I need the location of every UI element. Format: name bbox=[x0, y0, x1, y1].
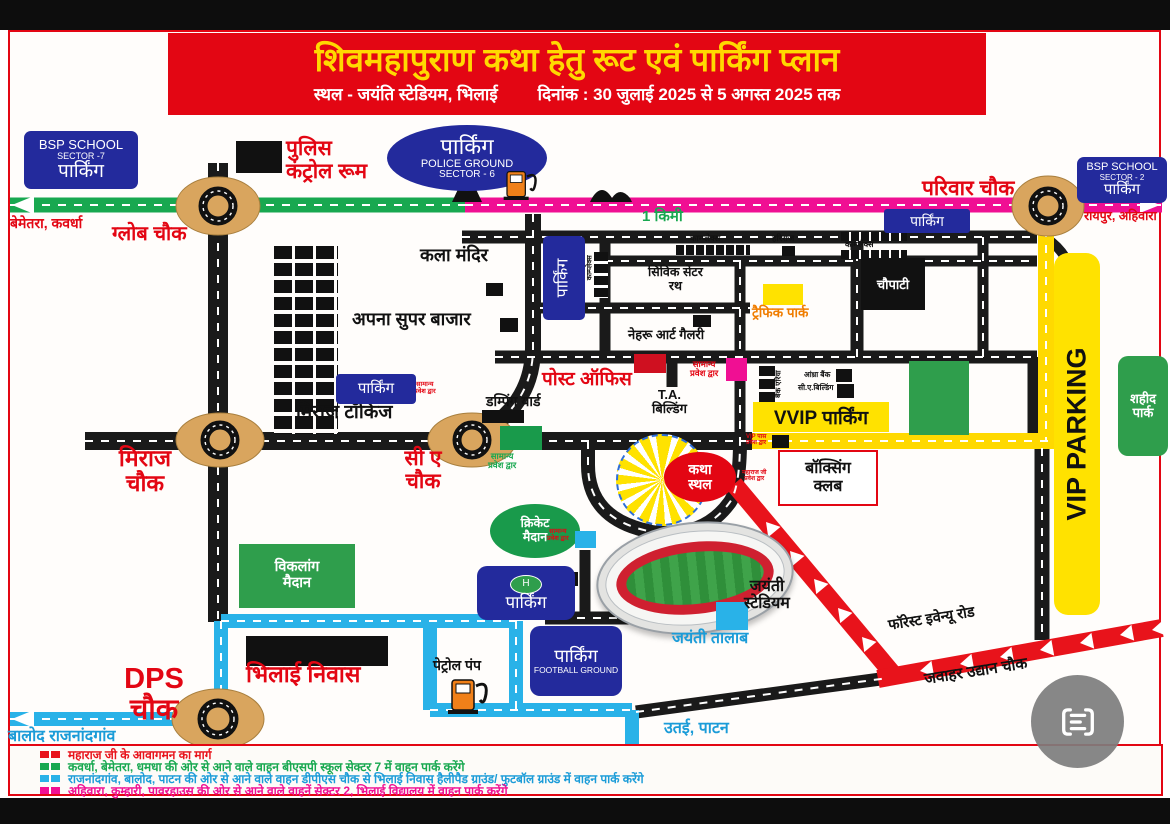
distance-1km-label: 1 किमी bbox=[642, 209, 683, 225]
jayanti-talab-label: जयंती तालाब bbox=[672, 630, 748, 647]
roadside-parking-sign: पार्किंग bbox=[884, 209, 970, 233]
samanya-gate-marker bbox=[500, 426, 542, 450]
civic-center-label: सिविक सेंटर रथ bbox=[648, 266, 703, 293]
boxing-club-label: बॉक्सिंग क्लब bbox=[805, 460, 851, 495]
samanya-gate-label: सामान्य प्रवेश द्वार bbox=[690, 360, 718, 378]
complex-parking-sign-vertical: पार्किंग bbox=[543, 236, 585, 320]
balod-direction-label: बालोद राजनांदगांव bbox=[8, 728, 115, 745]
hariraj-label: हरिराज bbox=[772, 234, 794, 243]
apna-super-bazar-building bbox=[500, 318, 518, 332]
sign-line: BSP SCHOOL bbox=[1086, 162, 1157, 174]
parivar-chowk-label: परिवार चौक bbox=[922, 178, 1014, 201]
raipur-direction-label: रायपुर, अहिवारा bbox=[1084, 210, 1157, 224]
complex-building-strip bbox=[676, 245, 750, 255]
shahid-park-area: शहीद पार्क bbox=[1118, 356, 1168, 456]
katha-sthal-label: कथा स्थल bbox=[688, 462, 712, 493]
jayanti-stadium-label: जयंती स्टेडियम bbox=[744, 578, 790, 613]
sign-line: पार्किंग bbox=[556, 259, 573, 298]
sign-line: SECTOR - 6 bbox=[439, 170, 495, 181]
legend-box: महाराज जी के आवागमन का मार्ग कवर्धा, बेम… bbox=[8, 744, 1163, 796]
samanya-gate-marker bbox=[575, 531, 596, 548]
legend-item: कवर्धा, बेमेतरा, धमधा की ओर से आने वाले … bbox=[40, 761, 1161, 772]
gate-arch-icon bbox=[590, 190, 632, 202]
kala-mandir-building bbox=[486, 283, 503, 296]
complex-building-strip bbox=[594, 252, 608, 298]
samanya-gate-label: सामान्य प्रवेश द्वार bbox=[547, 528, 569, 542]
legend-item: महाराज जी के आवागमन का मार्ग bbox=[40, 749, 1161, 760]
ca-building-label: सी.ए.बिल्डिंग bbox=[798, 384, 833, 392]
dumping-yard-building bbox=[482, 410, 524, 423]
post-office-label: पोस्ट ऑफिस bbox=[542, 370, 632, 391]
sign-line: BSP SCHOOL bbox=[39, 138, 123, 152]
shahid-park-label: शहीद पार्क bbox=[1130, 392, 1156, 421]
ca-chowk-label: सी ए चौक bbox=[388, 448, 458, 493]
bank-area-label: बैंक एरिया bbox=[775, 370, 783, 398]
helipad-parking-sign: H पार्किंग bbox=[477, 566, 575, 620]
apna-super-bazar-label: अपना सुपर बाजार bbox=[352, 310, 471, 329]
katha-sthal-marker: कथा स्थल bbox=[664, 452, 736, 502]
bemetara-direction-label: बेमेतरा, कवर्धा bbox=[10, 216, 82, 231]
traffic-park-area bbox=[763, 284, 803, 305]
andhra-bank-label: आंध्रा बैंक bbox=[804, 371, 830, 379]
dumping-yard-label: डम्पिंग यार्ड bbox=[486, 394, 541, 409]
petrol-pump-icon bbox=[502, 168, 542, 202]
vip-pass-gate bbox=[772, 435, 789, 448]
bsp-school-2-parking-sign: BSP SCHOOL SECTOR - 2 पार्किंग bbox=[1077, 157, 1167, 203]
samanya-gate-marker bbox=[726, 358, 747, 381]
miraj-parking-sign: पार्किंग bbox=[336, 374, 416, 404]
sign-line: पार्किंग bbox=[440, 135, 493, 158]
ta-building-label: T.A. बिल्डिंग bbox=[652, 388, 687, 416]
complex-label-vertical: काम्प्लेक्स bbox=[587, 255, 595, 280]
sign-line: पार्किंग bbox=[910, 214, 944, 229]
helipad-icon: H bbox=[510, 575, 542, 594]
sign-line: पार्किंग bbox=[554, 647, 598, 666]
boxing-club-box: बॉक्सिंग क्लब bbox=[778, 450, 878, 506]
vip-parking-sign: VIP PARKING bbox=[1054, 253, 1100, 615]
bank-area-buildings bbox=[759, 366, 775, 404]
legend-swatch-magenta bbox=[40, 787, 60, 794]
legend-item: अहिवारा, कुम्हारी, पावरहाउस की ओर से आने… bbox=[40, 785, 1161, 796]
scan-icon bbox=[1056, 700, 1100, 744]
football-ground-parking-sign: पार्किंग FOOTBALL GROUND bbox=[530, 626, 622, 696]
globe-chowk-roundabout bbox=[176, 177, 260, 235]
complex-label: काम्प्लेक्स bbox=[845, 241, 874, 250]
screenshot-root: शिवमहापुराण कथा हेतु रूट एवं पार्किंग प्… bbox=[0, 0, 1170, 824]
miraj-talkies-label: मिराज टॉकिज bbox=[296, 403, 392, 424]
nehru-art-gallery-building bbox=[693, 315, 711, 327]
sign-line: पार्किंग bbox=[1104, 182, 1140, 198]
chaupati-building: चौपाटी bbox=[861, 258, 925, 310]
sign-line: FOOTBALL GROUND bbox=[534, 666, 618, 675]
samanya-gate-label: सामान्य प्रवेश द्वार bbox=[488, 452, 516, 470]
ca-building-building bbox=[837, 384, 854, 398]
legend-item: राजनांदगांव, बालोद, पाटन की ओर से आने वा… bbox=[40, 773, 1161, 784]
nehru-art-gallery-label: नेहरू आर्ट गैलरी bbox=[628, 328, 704, 342]
police-control-building bbox=[236, 141, 282, 173]
legend-swatch-red bbox=[40, 751, 60, 758]
poster-title: शिवमहापुराण कथा हेतु रूट एवं पार्किंग प्… bbox=[315, 43, 840, 76]
complex-label: काम्प्लेक्स bbox=[690, 234, 720, 243]
miraj-chowk-label: मिराज चौक bbox=[100, 446, 190, 496]
venue-subtitle: स्थल - जयंति स्टेडियम, भिलाई bbox=[314, 82, 498, 105]
maharaj-gate-label: महाराज जी प्रवेश द्वार bbox=[742, 470, 766, 483]
petrol-pump-label: पेट्रोल पंप bbox=[433, 658, 481, 673]
sign-line: पार्किंग bbox=[505, 594, 546, 612]
legend-text: कवर्धा, बेमेतरा, धमधा की ओर से आने वाले … bbox=[68, 761, 465, 773]
cricket-maidan-label: क्रिकेट मैदान bbox=[521, 517, 550, 545]
green-park-area bbox=[909, 361, 969, 435]
hariraj-building bbox=[782, 246, 795, 256]
police-control-label: पुलिस कंट्रोल रूम bbox=[286, 138, 367, 183]
viklang-maidan-label: विकलांग मैदान bbox=[275, 560, 320, 592]
title-banner: शिवमहापुराण कथा हेतु रूट एवं पार्किंग प्… bbox=[168, 33, 986, 115]
post-office-building bbox=[634, 354, 666, 373]
petrol-pump-icon bbox=[446, 676, 494, 716]
utai-direction-label: उतई, पाटन bbox=[664, 720, 729, 737]
date-subtitle: दिनांक : 30 जुलाई 2025 से 5 अगस्त 2025 त… bbox=[538, 82, 840, 105]
bsp-school-7-parking-sign: BSP SCHOOL SECTOR -7 पार्किंग bbox=[24, 131, 138, 189]
kala-mandir-label: कला मंदिर bbox=[420, 246, 488, 265]
legend-text: महाराज जी के आवागमन का मार्ग bbox=[68, 749, 211, 761]
vvip-parking-sign: VVIP पार्किंग bbox=[753, 402, 889, 432]
legend-swatch-green bbox=[40, 763, 60, 770]
sign-line: VIP PARKING bbox=[1062, 347, 1093, 520]
sign-line: पार्किंग bbox=[358, 381, 394, 397]
andhra-bank-building bbox=[836, 369, 852, 382]
viklang-maidan-area: विकलांग मैदान bbox=[239, 544, 355, 608]
legend-swatch-blue bbox=[40, 775, 60, 782]
scan-button[interactable] bbox=[1031, 675, 1124, 768]
vip-pass-gate-label: VIP पास प्रवेश द्वार bbox=[746, 434, 766, 447]
traffic-park-label: ट्रैफिक पार्क bbox=[752, 306, 808, 321]
sign-line: VVIP पार्किंग bbox=[774, 404, 868, 430]
chaupati-label: चौपाटी bbox=[877, 275, 909, 293]
sign-line: पार्किंग bbox=[58, 162, 104, 182]
parivar-chowk-roundabout bbox=[1012, 176, 1084, 236]
legend-text: अहिवारा, कुम्हारी, पावरहाउस की ओर से आने… bbox=[68, 785, 508, 797]
globe-chowk-label: ग्लोब चौक bbox=[112, 224, 187, 246]
legend-text: राजनांदगांव, बालोद, पाटन की ओर से आने वा… bbox=[68, 773, 644, 785]
samanya-gate-label: सामान्य प्रवेश द्वार bbox=[414, 381, 436, 395]
bhilai-niwas-label: भिलाई निवास bbox=[246, 662, 360, 687]
dps-chowk-label: DPS चौक bbox=[108, 664, 200, 727]
